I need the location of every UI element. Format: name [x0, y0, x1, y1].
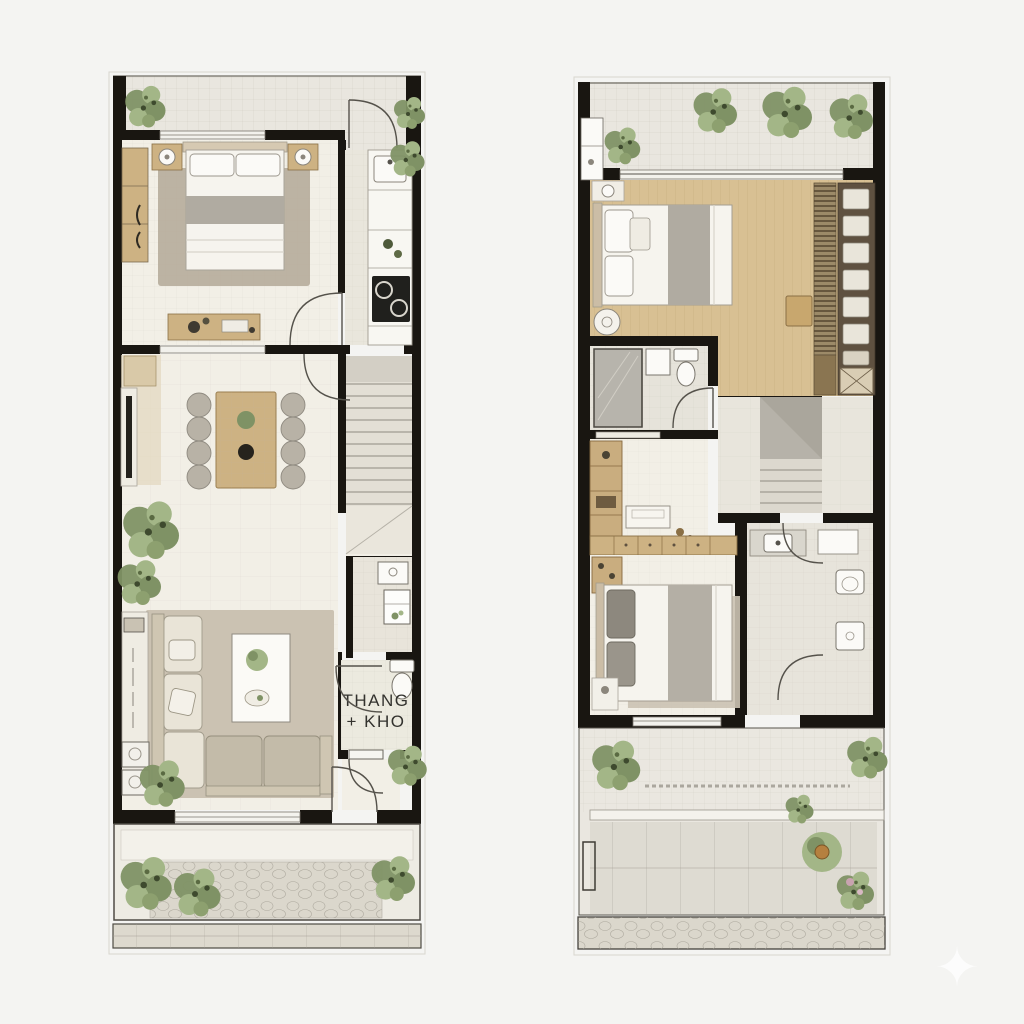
bath-cabinet — [818, 530, 858, 554]
wardrobe — [122, 148, 148, 262]
washbasin — [378, 562, 408, 584]
round-side-table — [594, 309, 620, 335]
double-bed — [183, 142, 287, 270]
wall-niche-shelf — [581, 118, 603, 180]
toilet-2 — [836, 570, 864, 594]
table-plant — [237, 411, 255, 429]
dining-table — [216, 392, 276, 488]
floor-plan-ground: THANG + KHO — [109, 72, 427, 954]
room-label-stairs-storage-line2: + KHO — [347, 712, 406, 731]
tall-cabinet — [590, 441, 622, 539]
tv-console — [121, 388, 137, 486]
side-cabinet — [124, 356, 156, 386]
coffee-table — [232, 634, 290, 722]
bedroom-1 — [122, 140, 338, 345]
potted-plant — [802, 832, 842, 872]
terrace-rail — [590, 810, 884, 820]
floor-plan-sheet: THANG + KHO — [0, 0, 1024, 1024]
sliding-door — [596, 432, 660, 438]
master-bed — [593, 203, 732, 307]
bathroom-2 — [747, 523, 873, 715]
back-garden — [113, 824, 421, 948]
dresser-console — [168, 314, 260, 340]
sparkle-icon: ✦ — [934, 936, 979, 999]
nightstand-right — [288, 144, 318, 170]
stool — [786, 296, 812, 326]
kitchen — [345, 150, 412, 345]
bedroom-2 — [590, 555, 740, 715]
louver-closet — [814, 183, 836, 395]
side-shelf — [122, 612, 148, 754]
bath-bench — [646, 349, 670, 375]
shower-tray — [836, 622, 864, 650]
wardrobe-shelves — [838, 183, 875, 395]
bath-window — [384, 590, 410, 624]
nightstand-left — [152, 144, 182, 170]
shower — [594, 349, 642, 427]
storage-basket — [840, 368, 873, 394]
floor-plan-upper — [574, 77, 890, 955]
room-label-stairs-storage-line1: THANG — [343, 691, 410, 710]
drawer-console — [590, 536, 737, 555]
cooktop — [372, 276, 410, 322]
staircase-2 — [718, 397, 873, 513]
bathroom-1 — [353, 557, 412, 652]
table-bowl — [238, 444, 254, 460]
staircase-1 — [346, 356, 412, 554]
